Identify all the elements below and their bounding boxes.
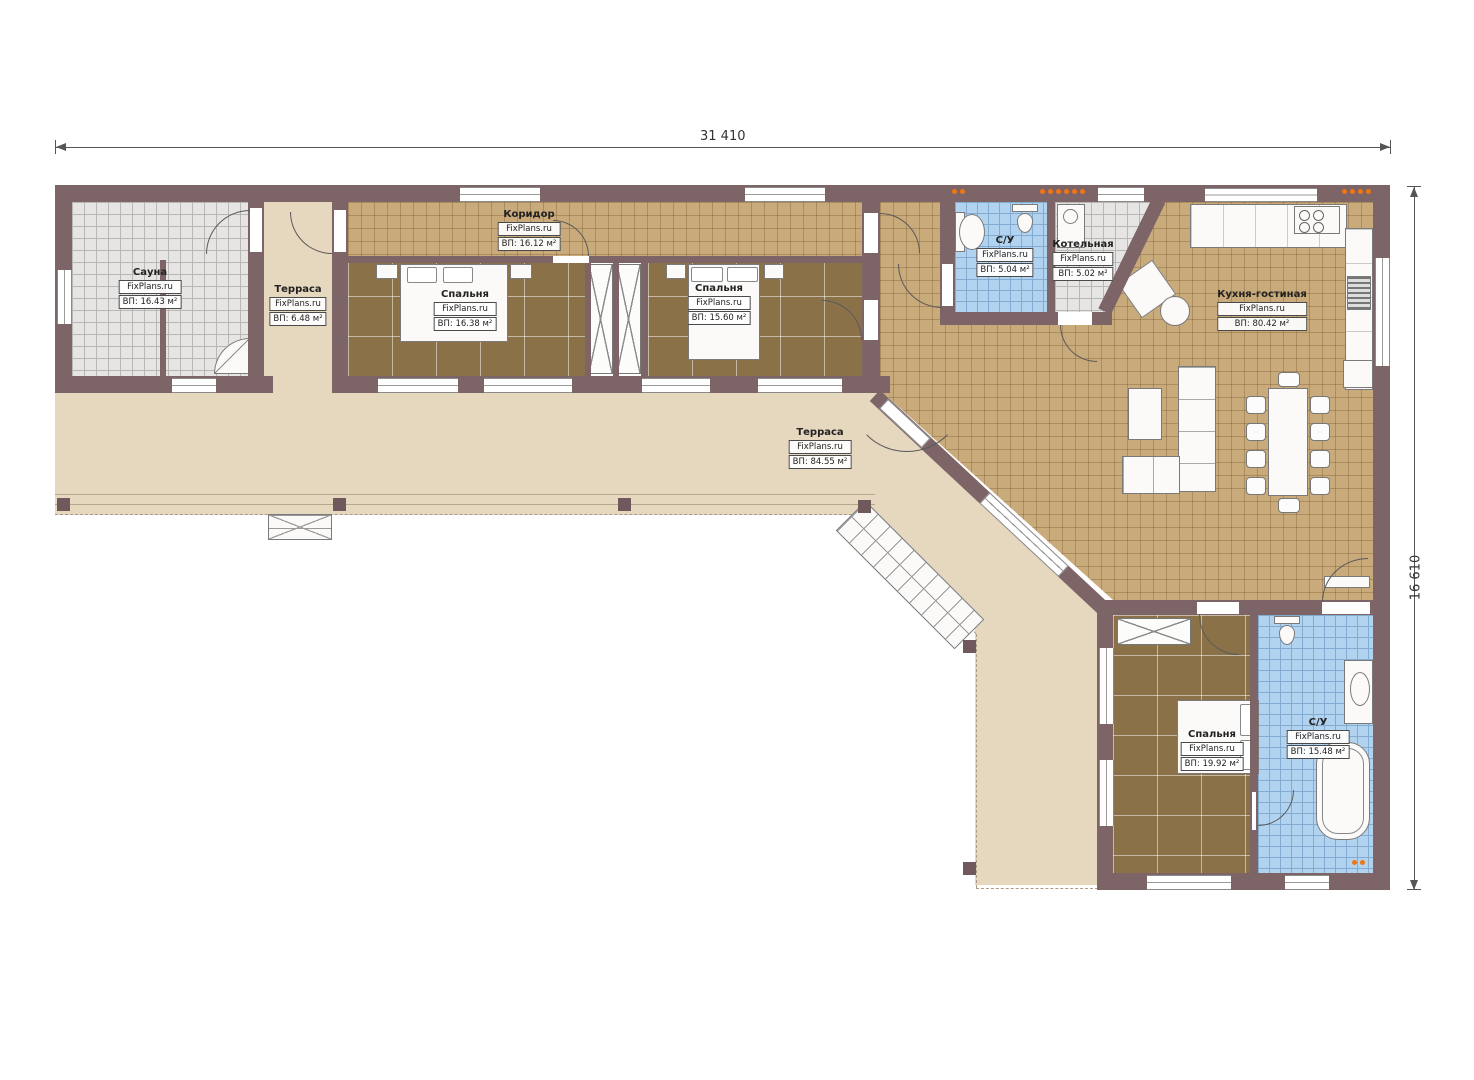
corridor-bottom-wall xyxy=(348,256,862,263)
sauna-bottom-wall xyxy=(55,376,273,393)
radiator xyxy=(1352,860,1365,865)
wardrobe xyxy=(1117,618,1191,645)
terrace-post xyxy=(618,498,631,511)
room-name: Кухня-гостиная xyxy=(1217,288,1307,301)
room-area: ВП: 5.02 м² xyxy=(1052,267,1113,281)
terrace-post xyxy=(963,640,976,653)
dimension-tick xyxy=(1390,140,1391,154)
watermark: FixPlans.ru xyxy=(119,280,182,294)
window xyxy=(745,187,825,202)
toilet-tank xyxy=(1274,616,1300,624)
door-opening xyxy=(942,264,953,306)
door-opening xyxy=(864,300,878,340)
dimension-width-label: 31 410 xyxy=(700,129,746,144)
stove xyxy=(1294,206,1340,234)
room-name: Спальня xyxy=(1181,728,1244,741)
terrace-dashed-edge xyxy=(976,888,1098,889)
room-label-main-terrace: Терраса FixPlans.ruВП: 84.55 м² xyxy=(789,426,852,469)
window xyxy=(1099,648,1114,724)
floor-plan-canvas: Сауна FixPlans.ruВП: 16.43 м² Терраса Fi… xyxy=(0,0,1474,1080)
kitchen-sink xyxy=(1347,276,1371,310)
watermark: FixPlans.ru xyxy=(1287,730,1350,744)
south-wing-bottom-wall xyxy=(1097,873,1390,890)
wc-small-bottom-wall xyxy=(940,312,1055,325)
window xyxy=(1099,760,1114,826)
washbasin xyxy=(1350,672,1370,706)
watermark: FixPlans.ru xyxy=(976,248,1033,262)
watermark: FixPlans.ru xyxy=(789,440,852,454)
radiator xyxy=(952,189,965,194)
window xyxy=(642,378,710,393)
pillow xyxy=(407,267,437,283)
dining-chair xyxy=(1278,372,1300,387)
room-name: С/У xyxy=(1287,716,1350,729)
nightstand xyxy=(376,264,398,279)
radiator xyxy=(1040,189,1085,194)
window xyxy=(484,378,572,393)
window xyxy=(1205,188,1317,202)
dimension-line-top xyxy=(55,147,1391,148)
window xyxy=(1375,258,1390,366)
boiler-burner xyxy=(1063,209,1078,224)
window xyxy=(1147,875,1231,890)
dining-chair xyxy=(1246,477,1266,495)
dimension-arrow-right-icon xyxy=(1380,143,1390,151)
door-opening xyxy=(1252,792,1256,830)
terrace-post xyxy=(963,862,976,875)
room-label-small-terrace: Терраса FixPlans.ruВП: 6.48 м² xyxy=(269,283,326,326)
wardrobe-wall xyxy=(613,256,619,376)
window xyxy=(460,187,540,202)
bedroom3-bathroom-divider xyxy=(1250,615,1258,873)
room-label-bedroom1: Спальня FixPlans.ruВП: 16.38 м² xyxy=(434,288,497,331)
watermark: FixPlans.ru xyxy=(1181,742,1244,756)
dimension-arrow-down-icon xyxy=(1410,880,1418,890)
dimension-height-label: 16 610 xyxy=(1409,548,1424,608)
dining-chair xyxy=(1310,423,1330,441)
dining-chair xyxy=(1310,477,1330,495)
room-label-kitchen-living: Кухня-гостиная FixPlans.ruВП: 80.42 м² xyxy=(1217,288,1307,331)
door-opening xyxy=(1058,312,1092,325)
wardrobe xyxy=(588,264,613,374)
room-label-bedroom2: Спальня FixPlans.ruВП: 15.60 м² xyxy=(688,282,751,325)
watermark: FixPlans.ru xyxy=(1052,252,1113,266)
room-area: ВП: 16.12 м² xyxy=(498,237,561,251)
window xyxy=(378,378,458,393)
dimension-line-right xyxy=(1414,186,1415,890)
terrace-post xyxy=(858,500,871,513)
room-name: Терраса xyxy=(789,426,852,439)
window xyxy=(758,378,842,393)
side-table-round xyxy=(1160,296,1190,326)
window xyxy=(1098,187,1144,202)
room-label-wc-small: С/У FixPlans.ruВП: 5.04 м² xyxy=(976,234,1033,277)
pillow xyxy=(691,267,723,282)
sofa xyxy=(1178,366,1216,492)
room-area: ВП: 16.43 м² xyxy=(119,295,182,309)
terrace-dashed-edge xyxy=(976,634,977,888)
dining-chair xyxy=(1246,450,1266,468)
room-name: Сауна xyxy=(119,266,182,279)
nightstand xyxy=(764,264,784,279)
wardrobe xyxy=(616,264,641,374)
pillow xyxy=(727,267,758,282)
nightstand xyxy=(666,264,686,279)
dimension-arrow-up-icon xyxy=(1410,187,1418,197)
window xyxy=(1285,875,1329,890)
room-label-sauna: Сауна FixPlans.ruВП: 16.43 м² xyxy=(119,266,182,309)
dining-chair xyxy=(1310,396,1330,414)
door-opening xyxy=(864,213,878,253)
pillow xyxy=(443,267,473,283)
room-area: ВП: 15.48 м² xyxy=(1287,745,1350,759)
dining-chair xyxy=(1246,423,1266,441)
room-area: ВП: 84.55 м² xyxy=(789,455,852,469)
coffee-table xyxy=(1128,388,1162,440)
room-area: ВП: 16.38 м² xyxy=(434,317,497,331)
room-name: Котельная xyxy=(1052,238,1113,251)
nightstand xyxy=(510,264,532,279)
door-opening xyxy=(1322,602,1370,614)
terrace-edge-line xyxy=(55,494,875,495)
radiator xyxy=(1342,189,1371,194)
terrace-edge-line xyxy=(55,504,875,505)
room-area: ВП: 19.92 м² xyxy=(1181,757,1244,771)
watermark: FixPlans.ru xyxy=(434,302,497,316)
door-opening xyxy=(1197,602,1239,614)
watermark: FixPlans.ru xyxy=(1217,302,1307,316)
room-name: Спальня xyxy=(688,282,751,295)
sofa-corner xyxy=(1122,456,1180,494)
room-name: Спальня xyxy=(434,288,497,301)
room-area: ВП: 6.48 м² xyxy=(269,312,326,326)
door-opening xyxy=(553,256,589,263)
corridor-floor xyxy=(348,202,862,256)
door-opening xyxy=(250,208,262,252)
wardrobe-wall xyxy=(585,256,591,376)
room-label-bedroom3: Спальня FixPlans.ruВП: 19.92 м² xyxy=(1181,728,1244,771)
room-name: С/У xyxy=(976,234,1033,247)
room-area: ВП: 5.04 м² xyxy=(976,263,1033,277)
dining-chair xyxy=(1310,450,1330,468)
watermark: FixPlans.ru xyxy=(688,296,751,310)
wardrobe-wall xyxy=(641,256,648,376)
terrace-post xyxy=(333,498,346,511)
room-area: ВП: 15.60 м² xyxy=(688,311,751,325)
room-label-bathroom: С/У FixPlans.ruВП: 15.48 м² xyxy=(1287,716,1350,759)
kitchen-cabinet xyxy=(1343,360,1373,388)
room-label-corridor: Коридор FixPlans.ruВП: 16.12 м² xyxy=(498,208,561,251)
room-name: Терраса xyxy=(269,283,326,296)
exterior-wall-top xyxy=(55,185,1390,202)
dining-chair xyxy=(1278,498,1300,513)
window xyxy=(57,270,72,324)
entry-steps xyxy=(268,514,332,540)
dining-table xyxy=(1268,388,1308,496)
terrace-dashed-edge xyxy=(55,514,877,515)
room-label-boiler: Котельная FixPlans.ruВП: 5.02 м² xyxy=(1052,238,1113,281)
watermark: FixPlans.ru xyxy=(498,222,561,236)
terrace-post xyxy=(57,498,70,511)
door-opening xyxy=(334,210,346,252)
dimension-arrow-left-icon xyxy=(56,143,66,151)
dining-chair xyxy=(1246,396,1266,414)
watermark: FixPlans.ru xyxy=(269,297,326,311)
toilet-tank xyxy=(1012,204,1038,212)
room-name: Коридор xyxy=(498,208,561,221)
window xyxy=(172,378,216,393)
room-area: ВП: 80.42 м² xyxy=(1217,317,1307,331)
